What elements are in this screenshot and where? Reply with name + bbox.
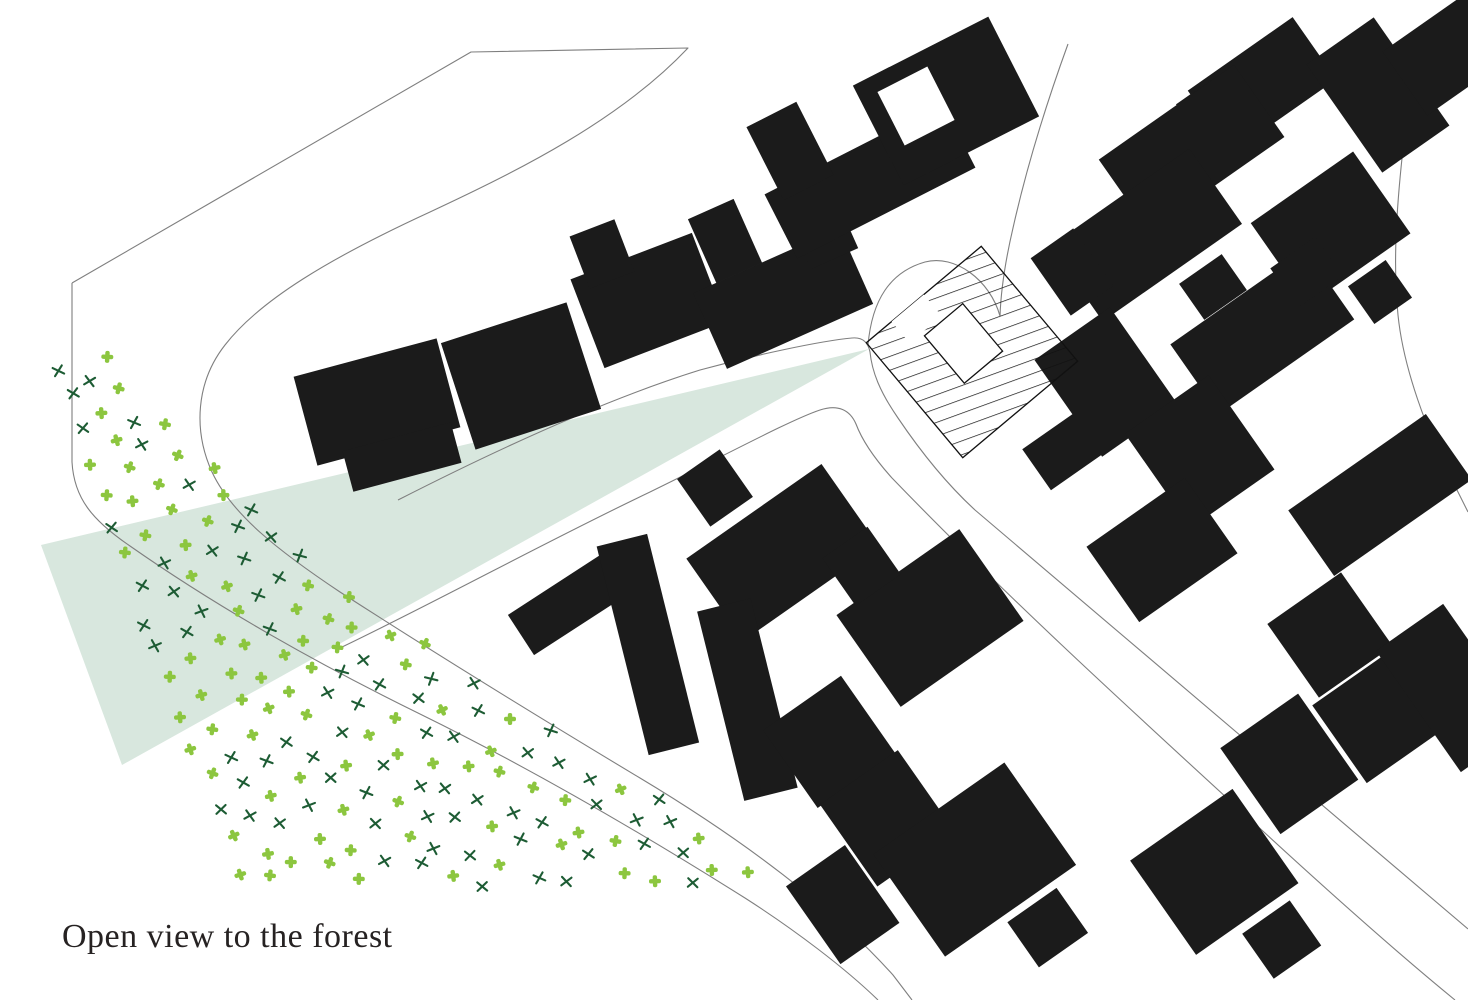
site-plan-map: Open view to the forest bbox=[0, 0, 1468, 1000]
site-plan-diagram: Open view to the forest bbox=[0, 0, 1468, 1000]
caption: Open view to the forest bbox=[62, 918, 393, 955]
